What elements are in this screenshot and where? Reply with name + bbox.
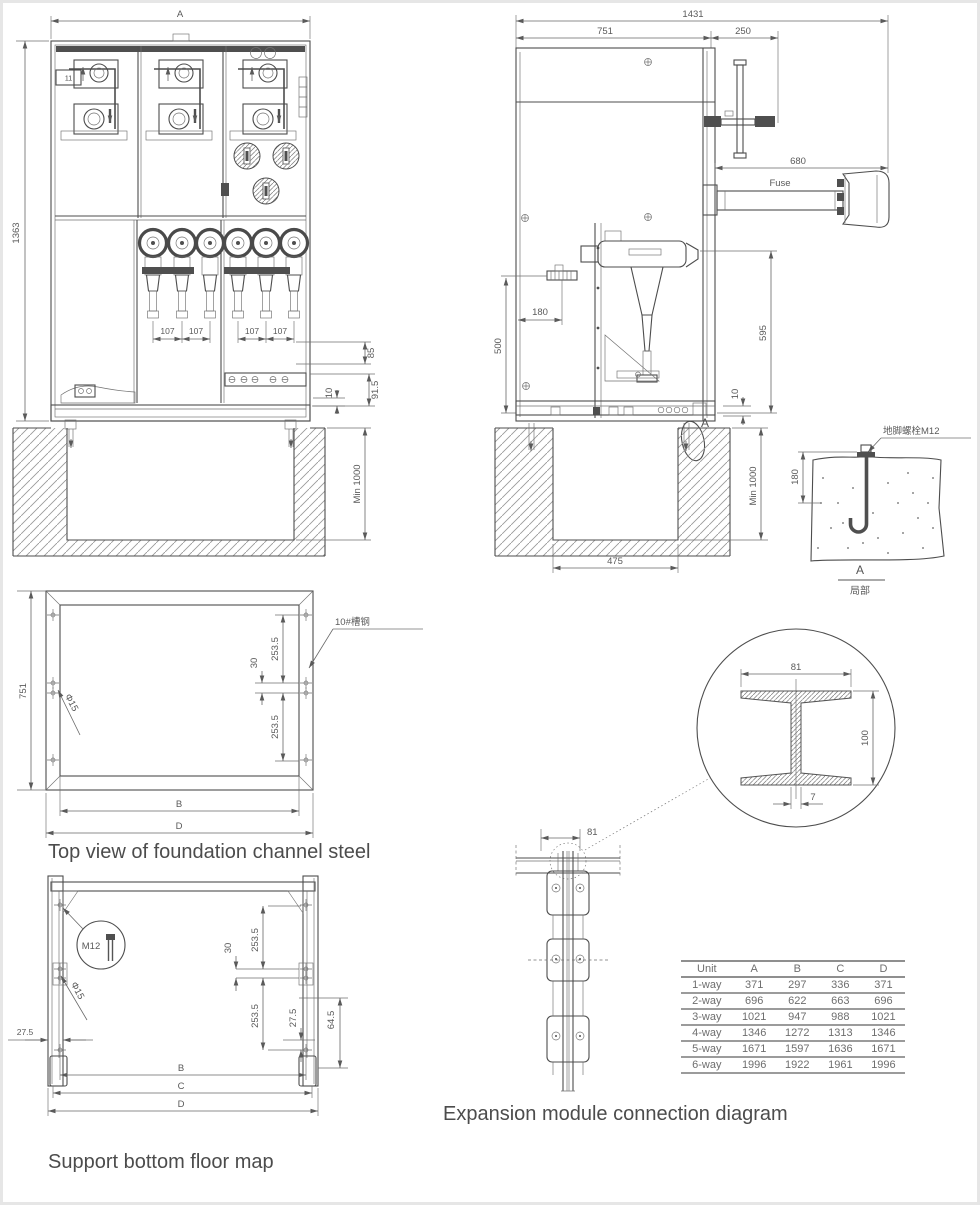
front-pitch-dims: 107 107 107 107 [153, 321, 294, 343]
dim-label: 253.5 [250, 928, 261, 952]
dim-label: 27.5 [288, 1009, 299, 1028]
front-nameplate: 11 [56, 70, 81, 85]
table-row: 3-way10219479881021 [681, 1009, 905, 1025]
side-foundation-pit [495, 423, 730, 556]
side-dim-total-width: 1431 [516, 9, 888, 173]
table-cell: 947 [776, 1009, 819, 1025]
table-row: 6-way1996192219611996 [681, 1057, 905, 1073]
table-cell: 1346 [733, 1025, 776, 1041]
dim-label: 751 [18, 683, 29, 699]
steel-label: 10#槽钢 [335, 616, 370, 628]
side-wall-bracket: 180 [518, 265, 577, 325]
table-header-row: UnitABCD [681, 961, 905, 977]
support-dim-d: D [48, 1088, 318, 1116]
dim-label: 1363 [11, 222, 22, 243]
dim-label: 91.5 [370, 381, 381, 400]
cable-label-bar [224, 267, 290, 274]
front-dim-overall-height: 1363 [11, 41, 49, 421]
table-header-cell: B [776, 961, 819, 977]
table-cell: 1346 [862, 1025, 905, 1041]
dim-label: 7 [810, 792, 815, 803]
front-cable-support [61, 385, 135, 403]
table-cell: 1021 [733, 1009, 776, 1025]
side-dim-body-width: 751 [516, 26, 711, 48]
channel-dim-b: B [60, 776, 299, 816]
front-right-dims: 85 91.5 10 [296, 342, 381, 414]
table-cell: 1636 [819, 1041, 862, 1057]
detail-mark-caption: 局部 [850, 584, 870, 597]
table-cell: 1671 [862, 1041, 905, 1057]
table-cell: 6-way [681, 1057, 733, 1073]
dim-label: A [177, 9, 184, 20]
screw-icon [522, 59, 652, 390]
dim-label: D [176, 821, 183, 832]
door-latch [221, 183, 229, 196]
dim-label: 751 [597, 26, 613, 37]
anchor-bolt [851, 445, 876, 532]
module-bolts [552, 884, 584, 1040]
table-header-cell: C [819, 961, 862, 977]
table-cell: 663 [819, 993, 862, 1009]
table-cell: 1-way [681, 977, 733, 993]
concrete-speckles [817, 472, 934, 554]
mechanism-panel [230, 60, 296, 140]
ibeam-dim-height: 100 [853, 691, 879, 785]
support-hole-callout: Φ15 [61, 976, 87, 1020]
table-cell: 2-way [681, 993, 733, 1009]
dim-label: 10 [730, 389, 741, 400]
support-dim-b: B [60, 1056, 306, 1080]
drawing-sheet: A 1363 11 [0, 0, 980, 1205]
side-breaker [581, 223, 698, 418]
dim-label: 250 [735, 26, 751, 37]
mechanism-panel [146, 60, 212, 140]
dim-label: 30 [249, 658, 260, 669]
front-fuse-covers [221, 143, 299, 204]
dim-label: 10 [324, 388, 335, 399]
dim-label: 253.5 [270, 637, 281, 661]
table-cell: 1961 [819, 1057, 862, 1073]
support-m12-callout: M12 [63, 908, 125, 969]
anchor-label: 地脚螺栓M12 [883, 425, 939, 437]
bolt-label: M12 [82, 941, 100, 952]
table-row: 4-way1346127213131346 [681, 1025, 905, 1041]
dim-label: 30 [223, 943, 234, 954]
caption-expansion-view: Expansion module connection diagram [443, 1103, 788, 1126]
dim-label: 595 [758, 325, 769, 341]
dim-label: C [178, 1081, 185, 1092]
dim-label: 81 [587, 827, 598, 838]
dim-label: 180 [790, 469, 801, 485]
dim-label: 64.5 [326, 1011, 337, 1030]
table-cell: 1597 [776, 1041, 819, 1057]
support-frame [48, 876, 318, 1086]
front-bushings [140, 230, 308, 319]
front-foundation-pit [13, 428, 325, 556]
table-cell: 988 [819, 1009, 862, 1025]
dim-label: 253.5 [270, 715, 281, 739]
front-base [51, 405, 310, 448]
mechanism-panel [61, 60, 127, 140]
hole-label: Φ15 [68, 980, 86, 1001]
table-cell: 622 [776, 993, 819, 1009]
detail-mark: A [856, 563, 864, 577]
table-cell: 371 [862, 977, 905, 993]
cable-label-bar [142, 267, 194, 274]
anchor-detail-mark: A 局部 [838, 563, 885, 597]
dim-label: 107 [273, 326, 287, 336]
dim-label: Min 1000 [748, 466, 759, 505]
dim-label: 107 [160, 326, 174, 336]
table-cell: 1671 [733, 1041, 776, 1057]
dim-label: 100 [860, 730, 871, 746]
channel-dim-depth: 751 [17, 591, 46, 790]
table-header-cell: Unit [681, 961, 733, 977]
table-cell: 696 [862, 993, 905, 1009]
dim-label: 27.5 [17, 1027, 34, 1037]
ibeam-dim-web: 7 [773, 787, 823, 809]
expansion-module: 81 [516, 827, 620, 1091]
channel-frame [46, 591, 313, 790]
dim-label: B [176, 799, 182, 810]
table-cell: 5-way [681, 1041, 733, 1057]
detail-leader-line [585, 778, 710, 850]
ibeam-detail-circle: 81 100 7 [697, 629, 895, 827]
side-dim-handle: 250 [711, 26, 778, 123]
nameplate-text: 11 [65, 76, 72, 83]
table-header-cell: D [862, 961, 905, 977]
table-cell: 4-way [681, 1025, 733, 1041]
dim-label: 475 [607, 556, 623, 567]
dim-label: D [178, 1099, 185, 1110]
dim-label: 253.5 [250, 1004, 261, 1028]
table-row: 2-way696622663696 [681, 993, 905, 1009]
ibeam-section [741, 691, 851, 785]
table-cell: 1996 [733, 1057, 776, 1073]
table-cell: 371 [733, 977, 776, 993]
side-base [516, 401, 715, 415]
dim-label: 1431 [682, 9, 703, 20]
dim-label: Min 1000 [352, 464, 363, 503]
front-dim-overall-width: A [51, 9, 310, 39]
table-cell: 1313 [819, 1025, 862, 1041]
bushing [197, 230, 224, 319]
fuse-label: Fuse [769, 178, 790, 189]
table-cell: 1922 [776, 1057, 819, 1073]
elbow-connector [837, 171, 889, 227]
table-cell: 297 [776, 977, 819, 993]
table-cell: 3-way [681, 1009, 733, 1025]
table-row: 5-way1671159716361671 [681, 1041, 905, 1057]
channel-hole-callout: Φ15 [58, 690, 80, 735]
concrete-block [811, 457, 944, 561]
support-right-dims: 30 253.5 253.5 27.5 64.5 [223, 906, 348, 1068]
caption-support-view: Support bottom floor map [48, 1151, 274, 1174]
front-cabinet-shell [51, 34, 310, 421]
channel-steel-view: 751 Φ15 10#槽钢 30 253.5 253.5 B D [3, 583, 443, 843]
dim-label: 680 [790, 156, 806, 167]
dim-label: 107 [245, 326, 259, 336]
caption-channel-view: Top view of foundation channel steel [48, 841, 370, 864]
front-mechanisms [61, 60, 296, 140]
side-dim-595: 595 [700, 251, 777, 413]
dim-label: 81 [791, 662, 802, 673]
table-cell: 1021 [862, 1009, 905, 1025]
side-cabinet-shell [516, 48, 715, 421]
table-cell: 1996 [862, 1057, 905, 1073]
channel-bolt-holes [47, 609, 312, 766]
anchor-detail: 地脚螺栓M12 180 A 局部 [793, 408, 980, 603]
side-dim-10: 10 [723, 389, 751, 425]
front-view: A 1363 11 [3, 3, 493, 581]
dim-label: 500 [493, 338, 504, 354]
size-table: UnitABCD 1-way3712973363712-way696622663… [681, 960, 905, 1074]
dim-label: B [178, 1063, 184, 1074]
table-cell: 1272 [776, 1025, 819, 1041]
table-cell: 696 [733, 993, 776, 1009]
table-cell: 336 [819, 977, 862, 993]
channel-hole-dims: 30 253.5 253.5 [249, 615, 299, 761]
support-dim-c: C [53, 1081, 312, 1098]
dim-label: 107 [189, 326, 203, 336]
dim-label: 180 [532, 307, 548, 318]
dim-label: 85 [366, 348, 377, 359]
support-dim-27-5-left: 27.5 [8, 1027, 93, 1040]
front-terminal-strip [225, 373, 306, 386]
hole-label: Φ15 [62, 692, 80, 713]
table-header-cell: A [733, 961, 776, 977]
side-fuse-assembly: 680 Fuse [703, 156, 889, 227]
table-row: 1-way371297336371 [681, 977, 905, 993]
channel-steel-callout: 10#槽钢 [309, 616, 423, 668]
